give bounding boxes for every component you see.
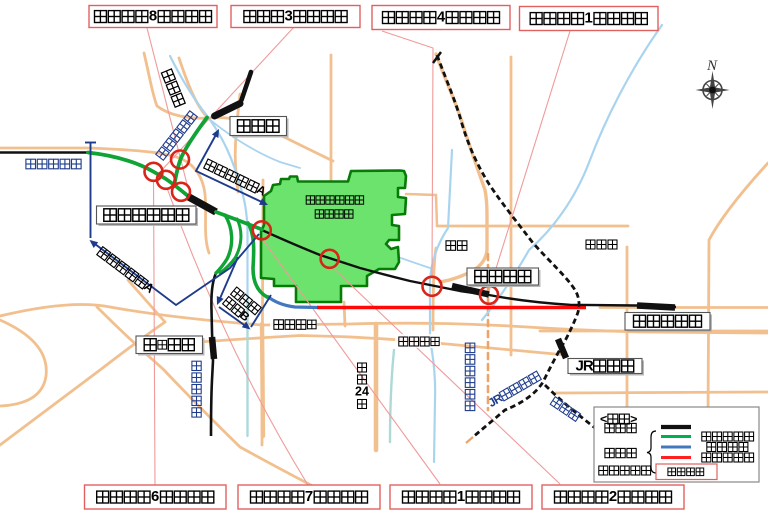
svg-text:24: 24 [355,385,369,399]
svg-text:1: 1 [457,489,465,505]
svg-text:8: 8 [149,9,157,25]
svg-text:7: 7 [305,489,313,505]
svg-text:3: 3 [284,9,292,25]
svg-text:2: 2 [609,489,617,505]
svg-text:4: 4 [437,10,446,26]
svg-text:N: N [706,58,718,74]
svg-text:6: 6 [151,489,159,505]
svg-text:R: R [583,358,594,375]
svg-text:1: 1 [585,11,593,27]
